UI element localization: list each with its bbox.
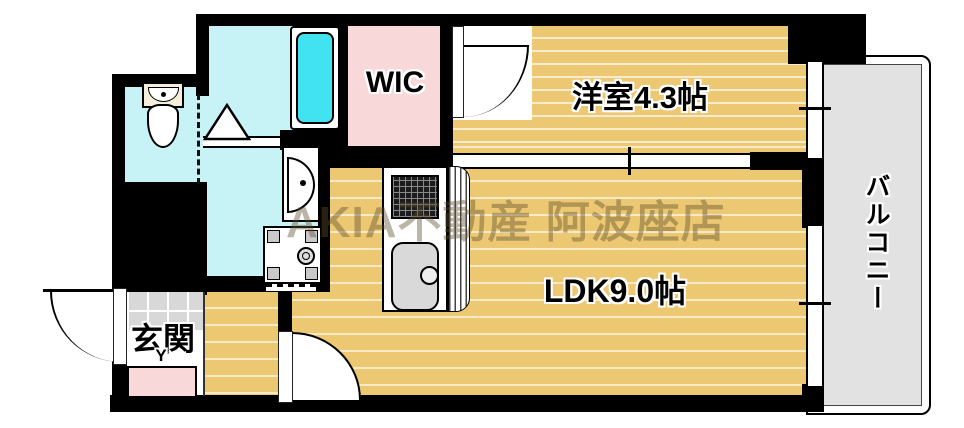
wall-window-divider <box>802 168 824 228</box>
balcony-window-lower <box>806 226 824 386</box>
label-western-room: 洋室4.3帖 <box>515 72 765 117</box>
toilet-tank-button <box>161 92 166 97</box>
washing-machine-corner <box>267 267 280 280</box>
wall-shaft-block <box>112 182 207 295</box>
wall-ldk-door <box>278 285 292 333</box>
wall-washroom-bottom-left <box>200 276 268 292</box>
label-ldk: LDK9.0帖 <box>500 266 730 312</box>
floor-hallway <box>205 290 280 398</box>
wic-door-leaf <box>452 26 464 118</box>
washing-machine-corner <box>305 267 318 280</box>
wall-toilet-left <box>112 74 125 190</box>
partition-tick <box>628 147 631 175</box>
bathtub-inner <box>296 32 334 124</box>
shoe-cabinet <box>127 366 197 398</box>
watermark: AKIA不動産 阿波座店 <box>286 186 726 250</box>
wall-bottom <box>110 395 824 412</box>
washing-machine-corner <box>267 230 280 243</box>
label-balcony: バルコニー <box>858 158 894 328</box>
entrance-door-frame-line <box>43 289 119 292</box>
entrance-step-mark: Y <box>146 346 176 366</box>
toilet-door-dashed <box>197 94 200 184</box>
washing-machine-drain-inner <box>302 252 310 260</box>
floor-plan: AKIA不動産 阿波座店 洋室4.3帖 WIC LDK9.0帖 玄関 バルコニー… <box>0 0 964 428</box>
window-upper-tick <box>799 107 831 110</box>
kitchen-faucet <box>420 266 439 285</box>
ldk-door-leaf <box>278 331 293 403</box>
sliding-partition <box>453 153 750 169</box>
entrance-door-arc <box>50 291 121 362</box>
window-lower-tick <box>799 302 831 305</box>
balcony-window-upper <box>806 62 824 158</box>
wall-top <box>197 14 866 26</box>
label-wic: WIC <box>350 66 440 100</box>
bath-door-triangle <box>203 102 251 142</box>
wall-pillar <box>788 14 866 64</box>
